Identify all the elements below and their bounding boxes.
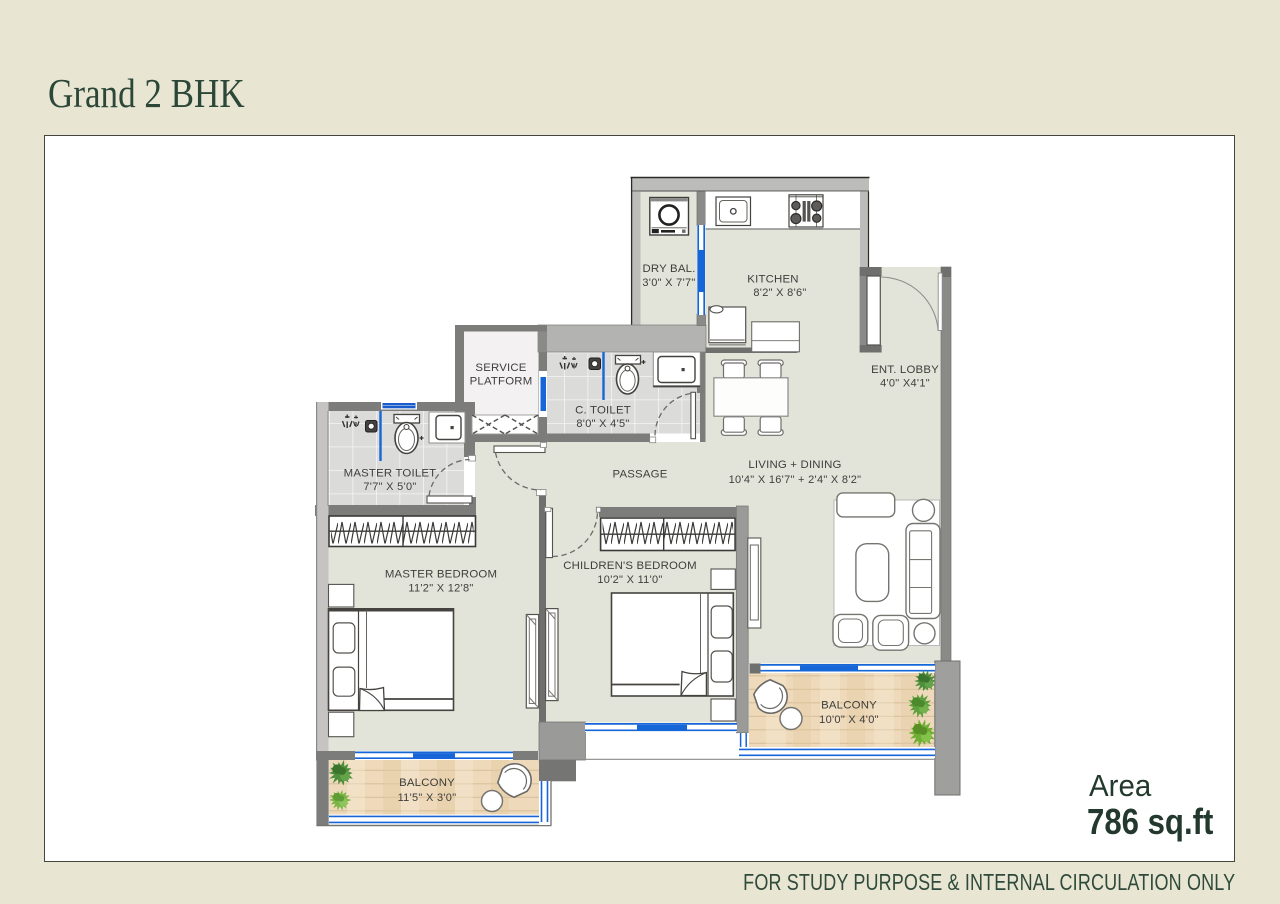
svg-text:7'7" X 5'0": 7'7" X 5'0" [363, 481, 416, 493]
svg-text:10'4" X 16'7" + 2'4" X 8'2": 10'4" X 16'7" + 2'4" X 8'2" [729, 474, 862, 486]
svg-text:8'0" X 4'5": 8'0" X 4'5" [576, 418, 629, 430]
svg-text:4'0" X4'1": 4'0" X4'1" [880, 378, 930, 390]
svg-text:10'0" X 4'0": 10'0" X 4'0" [819, 714, 879, 726]
svg-text:SERVICE: SERVICE [475, 362, 526, 374]
svg-text:KITCHEN: KITCHEN [747, 274, 798, 286]
svg-text:DRY BAL.: DRY BAL. [642, 263, 695, 275]
svg-text:MASTER BEDROOM: MASTER BEDROOM [385, 569, 497, 581]
svg-text:BALCONY: BALCONY [821, 700, 877, 712]
svg-text:3'0" X 7'7": 3'0" X 7'7" [642, 277, 695, 289]
svg-text:MASTER TOILET: MASTER TOILET [344, 468, 437, 480]
svg-text:8'2" X 8'6": 8'2" X 8'6" [753, 287, 806, 299]
svg-text:11'5" X 3'0": 11'5" X 3'0" [398, 792, 457, 804]
svg-text:PLATFORM: PLATFORM [470, 376, 533, 388]
svg-text:11'2" X 12'8": 11'2" X 12'8" [408, 583, 473, 595]
svg-text:BALCONY: BALCONY [399, 777, 455, 789]
svg-text:10'2" X 11'0": 10'2" X 11'0" [597, 574, 662, 586]
svg-text:PASSAGE: PASSAGE [613, 469, 668, 481]
svg-text:C. TOILET: C. TOILET [575, 405, 631, 417]
svg-text:ENT. LOBBY: ENT. LOBBY [871, 364, 939, 376]
svg-text:LIVING + DINING: LIVING + DINING [748, 459, 841, 471]
svg-text:CHILDREN'S BEDROOM: CHILDREN'S BEDROOM [563, 560, 697, 572]
